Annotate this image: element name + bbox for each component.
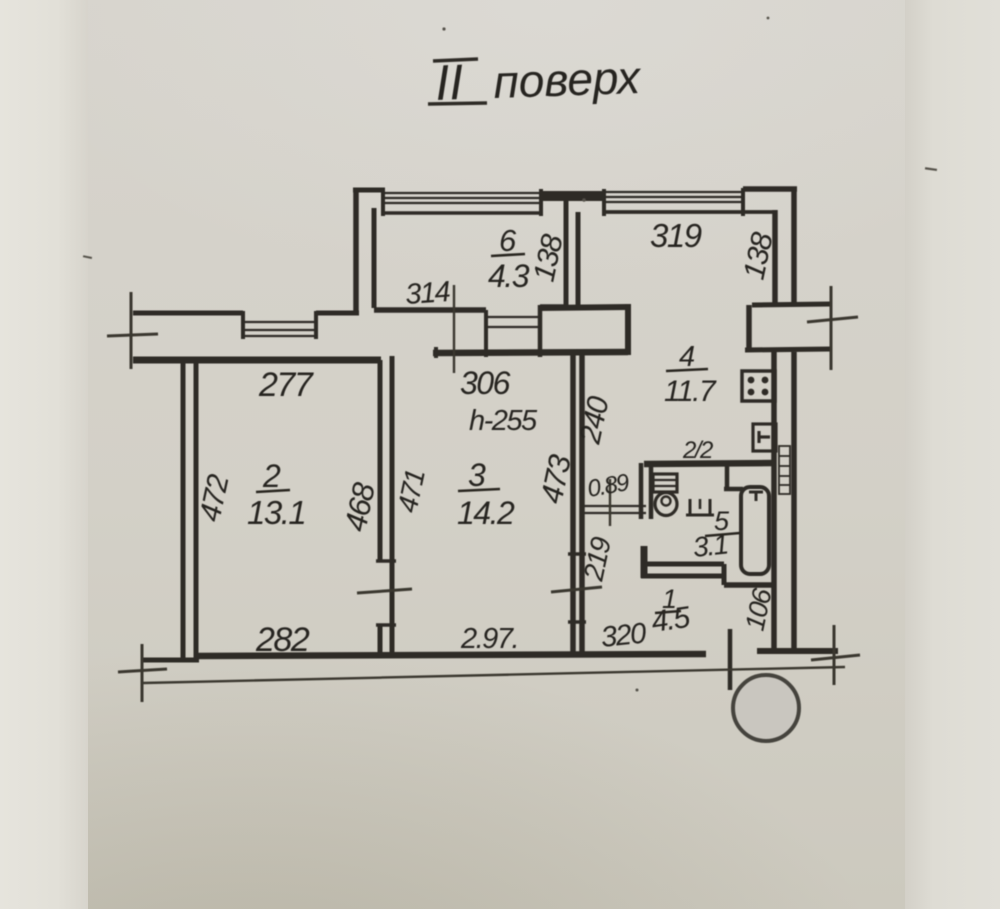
svg-text:468: 468 — [338, 479, 383, 535]
svg-text:2: 2 — [262, 458, 281, 494]
svg-text:320: 320 — [599, 617, 647, 654]
svg-text:314: 314 — [404, 276, 451, 311]
svg-text:2/2: 2/2 — [682, 437, 713, 464]
svg-text:277: 277 — [258, 366, 314, 404]
svg-text:поверх: поверх — [493, 51, 643, 108]
svg-text:319: 319 — [650, 217, 702, 254]
svg-text:4.5: 4.5 — [649, 601, 692, 639]
svg-text:282: 282 — [255, 621, 310, 659]
svg-text:6: 6 — [499, 223, 517, 258]
svg-text:0.89: 0.89 — [585, 469, 631, 503]
svg-text:471: 471 — [392, 468, 431, 516]
svg-text:11.7: 11.7 — [664, 375, 717, 408]
svg-text:138: 138 — [528, 231, 570, 284]
svg-text:h-255: h-255 — [469, 405, 538, 437]
svg-text:2.97.: 2.97. — [460, 623, 518, 655]
svg-text:13.1: 13.1 — [247, 494, 305, 531]
svg-text:14.2: 14.2 — [457, 495, 515, 531]
svg-text:472: 472 — [194, 471, 236, 524]
svg-text:3: 3 — [468, 457, 486, 493]
svg-text:306: 306 — [460, 365, 511, 401]
svg-text:4.3: 4.3 — [488, 258, 530, 294]
svg-text:4: 4 — [679, 341, 695, 373]
